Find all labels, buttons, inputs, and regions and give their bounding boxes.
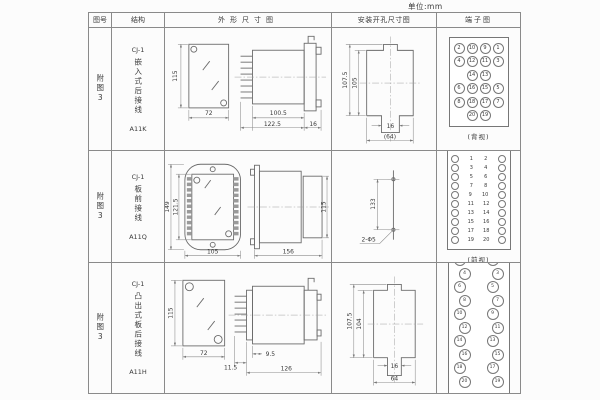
terminal: 16 [483,220,489,225]
terminal: 8 [459,295,471,307]
terminal-circle [451,173,459,181]
outline-svg-a11q: 149 121.5 105 156 [165,152,331,262]
side-view: 100.5 122.5 16 [235,36,326,130]
dim-inner-height: 104 [356,318,363,330]
terminal-circle [498,218,506,226]
install-svg-a11q: 133 2-Φ5 [332,152,436,262]
install-drawing-a11h: 107.5 104 16 64 [332,263,437,394]
dim-slot-width: 16 [387,123,395,130]
install-svg-a11k: 107.5 105 16 (64) [332,28,436,151]
terminal-diagram-a11k: 21091 412113 1413 616155 818177 2019 (背视… [437,28,521,151]
dim-cutout-width: (64) [384,133,396,140]
terminal: 7 [470,184,473,189]
install-drawing-a11q: 133 2-Φ5 [332,151,437,263]
dim-front-width: 105 [207,248,219,255]
terminal: 17 [480,97,491,108]
terminal: 9 [480,43,491,54]
terminal: 10 [454,308,466,320]
terminal-circle [498,173,506,181]
dim-front-height: 115 [167,307,174,319]
terminal: 14 [483,211,489,216]
fig-no-text: 附图3 [96,192,104,222]
view-label: (背视) [467,131,489,141]
terminal: 1 [487,263,499,266]
structure-code: A11Q [129,233,147,241]
install-svg-a11h: 107.5 104 16 64 [332,266,436,391]
terminal: 6 [454,83,465,94]
terminal: 20 [467,110,478,121]
dim-inner-height: 105 [351,77,358,89]
dim-slot-width: 16 [391,363,399,370]
terminal-circle [498,164,506,172]
terminal: 12 [459,322,471,334]
terminal: 7 [493,97,504,108]
structure-model: CJ-1 [132,173,145,181]
terminal: 7 [492,295,504,307]
terminal-circle [451,236,459,244]
terminal: 5 [470,175,473,180]
terminal: 4 [454,56,465,67]
dim-front-width: 72 [200,349,208,356]
terminal-circle [498,209,506,217]
terminal-circle [451,191,459,199]
terminal: 2 [454,263,466,266]
dim-front-height: 115 [172,70,179,82]
structure-code: A11K [130,125,147,133]
terminal: 14 [454,335,466,347]
side-view: 156 115 [248,165,330,258]
terminal: 6 [484,175,487,180]
terminal-diagram-a11h: 21 43 65 87 109 1211 1413 1615 1817 2019… [437,263,521,394]
terminal: 17 [468,229,474,234]
header-terminal: 端子图 [437,13,521,28]
terminal: 3 [470,166,473,171]
terminal: 9 [469,193,472,198]
terminal-circle [498,155,506,163]
terminal: 10 [467,43,478,54]
terminal: 15 [492,349,504,361]
terminal-box: 21 43 65 87 109 1211 1413 1615 1817 2019 [448,263,510,394]
structure-a11q: CJ-1 板前接线 A11Q [112,151,165,263]
terminal: 15 [480,83,491,94]
terminal-box: 12 34 56 78 910 1112 1314 1516 1718 1920 [447,151,511,250]
header-install: 安装开孔尺寸图 [332,13,437,28]
dim-pin-depth: 11.5 [224,364,237,371]
terminal: 16 [459,349,471,361]
terminal: 4 [484,166,487,171]
hole-callout: 2-Φ5 [361,236,376,243]
dim-front-width: 72 [205,109,213,116]
fig-no-text: 附图3 [96,313,104,343]
outline-drawing-a11k: 115 72 100.5 [165,28,332,151]
terminal-circle [451,200,459,208]
terminal: 14 [467,70,478,81]
terminal: 3 [493,56,504,67]
terminal: 12 [483,202,489,207]
header-outline: 外形尺寸图 [165,13,332,28]
fig-no-text: 附图3 [96,74,104,104]
structure-a11k: CJ-1 嵌入式后接线 A11K [112,28,165,151]
terminal-box: 21091 412113 1413 616155 818177 2019 [449,37,509,128]
terminal-circle [451,227,459,235]
dim-total-depth: 122.5 [264,120,281,127]
dim-front-inner-height: 121.5 [172,198,179,215]
dim-hole-spacing: 133 [370,198,377,210]
terminal: 11 [480,56,491,67]
terminal-circle [498,182,506,190]
terminal: 20 [459,376,471,388]
dim-side-height: 115 [321,201,328,213]
terminal: 19 [468,238,474,243]
terminal: 9 [487,308,499,320]
side-view: 9.5 11.5 126 [224,278,326,375]
terminal: 13 [468,211,474,216]
structure-desc: 板前接线 [134,185,142,223]
dim-outer-height: 107.5 [346,312,353,329]
terminal: 8 [484,184,487,189]
terminal-circle [451,218,459,226]
outline-drawing-a11q: 149 121.5 105 156 [165,151,332,263]
terminal: 18 [454,362,466,374]
terminal-diagram-a11q: 12 34 56 78 910 1112 1314 1516 1718 1920… [437,151,521,263]
terminal: 11 [492,322,504,334]
dim-cutout-width: 64 [391,375,399,382]
header-structure: 结构 [112,13,165,28]
dim-outer-height: 107.5 [342,71,349,88]
terminal: 20 [483,238,489,243]
fig-no-a11q: 附图3 [89,151,112,263]
terminal: 5 [487,281,499,293]
terminal-circle [498,191,506,199]
terminal: 16 [467,83,478,94]
spec-table: 图号 结构 外形尺寸图 安装开孔尺寸图 端子图 附图3 CJ-1 嵌入式后接线 … [88,12,521,394]
terminal-circle [451,209,459,217]
view-label: (前视) [467,254,489,264]
terminal: 10 [482,193,488,198]
structure-a11h: CJ-1 凸出式板后接线 A11H [112,263,165,394]
terminal: 8 [454,97,465,108]
terminal: 1 [493,43,504,54]
terminal: 2 [454,43,465,54]
fig-no-a11k: 附图3 [89,28,112,151]
outline-drawing-a11h: 115 72 9 [165,263,332,394]
terminal: 12 [467,56,478,67]
front-view: 149 121.5 105 [165,164,241,258]
terminal-circle [451,164,459,172]
terminal: 18 [467,97,478,108]
structure-model: CJ-1 [132,280,145,288]
outline-svg-a11k: 115 72 100.5 [165,28,331,151]
dim-total-depth: 126 [281,365,293,372]
structure-desc: 嵌入式后接线 [134,58,142,115]
install-drawing-a11k: 107.5 105 16 (64) [332,28,437,151]
terminal-circle [451,155,459,163]
terminal: 5 [493,83,504,94]
terminal: 3 [492,268,504,280]
terminal-circle [498,200,506,208]
header-fig-no: 图号 [89,13,112,28]
terminal-circle [498,227,506,235]
terminal: 11 [468,202,474,207]
dim-stud-depth: 9.5 [266,350,276,357]
dim-flange-depth: 16 [309,120,317,127]
dim-body-depth: 100.5 [270,109,287,116]
terminal: 2 [484,157,487,162]
terminal: 15 [468,220,474,225]
terminal: 19 [480,110,491,121]
terminal: 17 [487,362,499,374]
terminal-circle [498,236,506,244]
front-view: 115 72 [172,44,229,121]
outline-svg-a11h: 115 72 9 [165,266,331,391]
structure-model: CJ-1 [132,46,145,54]
terminal: 13 [487,335,499,347]
unit-label: 单位:mm [408,1,443,12]
structure-code: A11H [129,368,147,376]
terminal: 1 [470,157,473,162]
dim-front-outer-height: 149 [165,201,171,213]
terminal: 18 [483,229,489,234]
terminal: 19 [492,376,504,388]
fig-no-a11h: 附图3 [89,263,112,394]
document-page: 单位:mm 图号 结构 外形尺寸图 安装开孔尺寸图 端子图 附图3 CJ-1 嵌… [0,0,600,400]
structure-desc: 凸出式板后接线 [134,292,142,359]
terminal: 4 [459,268,471,280]
dim-total-depth: 156 [283,248,295,255]
front-view: 115 72 [167,280,224,360]
terminal: 13 [480,70,491,81]
terminal: 6 [454,281,466,293]
terminal-circle [451,182,459,190]
